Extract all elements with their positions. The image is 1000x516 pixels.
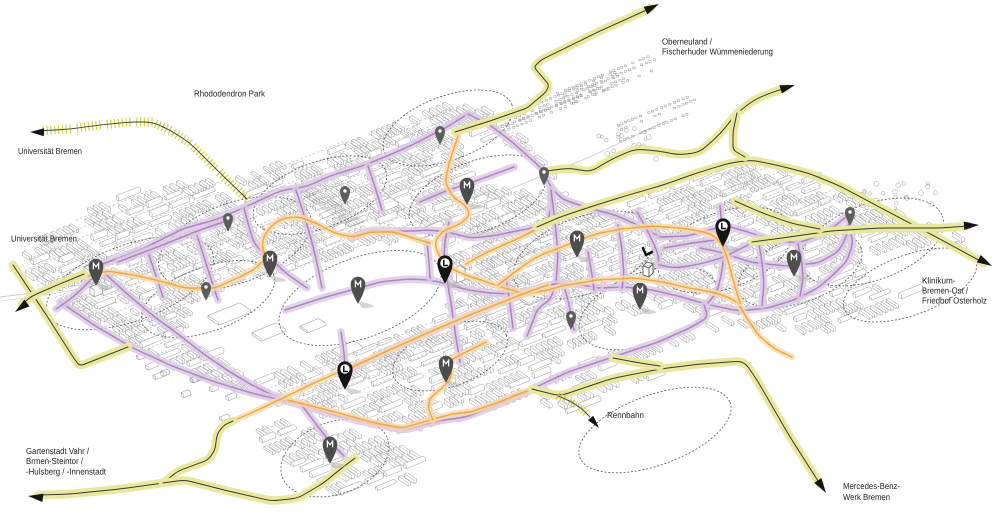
svg-text:Universität Bremen: Universität Bremen (18, 146, 82, 156)
svg-text:Universität Bremen: Universität Bremen (11, 234, 77, 244)
svg-text:Rhododendron Park: Rhododendron Park (194, 89, 266, 99)
svg-text:Rennbahn: Rennbahn (607, 410, 644, 420)
